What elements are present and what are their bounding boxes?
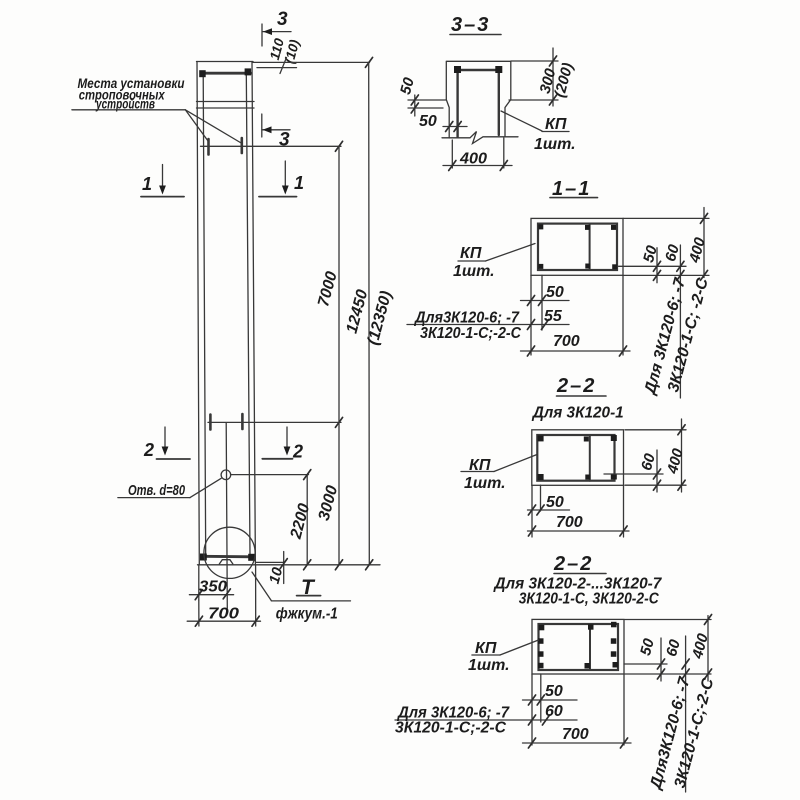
svg-text:12450: 12450 — [344, 288, 372, 335]
svg-text:1–1: 1–1 — [552, 178, 591, 200]
svg-text:50: 50 — [397, 75, 418, 96]
svg-text:700: 700 — [208, 606, 239, 623]
svg-text:2200: 2200 — [287, 502, 313, 542]
svg-text:3000: 3000 — [316, 484, 342, 523]
svg-text:50: 50 — [546, 494, 564, 511]
svg-text:Для 3К120-1: Для 3К120-1 — [531, 405, 624, 422]
svg-text:3К120-1-С;-2-С: 3К120-1-С;-2-С — [420, 325, 521, 342]
svg-text:3К120-1-С, 3К120-2-С: 3К120-1-С, 3К120-2-С — [519, 591, 659, 608]
svg-text:3К120-1-С;-2-С: 3К120-1-С;-2-С — [395, 720, 506, 737]
svg-text:400: 400 — [459, 151, 487, 168]
svg-text:КП: КП — [545, 116, 567, 133]
svg-text:фжкум.-1: фжкум.-1 — [276, 606, 338, 623]
svg-text:КП: КП — [460, 245, 482, 262]
svg-text:(200): (200) — [551, 61, 576, 99]
svg-text:Отв. d=80: Отв. d=80 — [128, 483, 185, 499]
svg-text:60: 60 — [663, 637, 684, 658]
svg-text:50: 50 — [545, 683, 563, 700]
svg-text:1: 1 — [142, 174, 152, 194]
svg-text:3: 3 — [277, 9, 288, 30]
svg-text:400: 400 — [686, 235, 709, 265]
svg-text:2–2: 2–2 — [553, 553, 593, 575]
svg-text:2–2: 2–2 — [556, 375, 596, 397]
svg-text:2: 2 — [292, 442, 303, 462]
svg-text:Для3К120-6; -7: Для3К120-6; -7 — [413, 310, 520, 327]
svg-text:60: 60 — [545, 703, 563, 720]
svg-text:50: 50 — [546, 284, 564, 301]
svg-text:2: 2 — [143, 440, 154, 460]
svg-text:350: 350 — [199, 579, 227, 596]
svg-text:3–3: 3–3 — [451, 14, 490, 36]
svg-text:50: 50 — [419, 113, 437, 130]
svg-text:1: 1 — [294, 173, 304, 193]
svg-text:400: 400 — [664, 446, 687, 476]
svg-text:700: 700 — [562, 726, 589, 743]
svg-text:50: 50 — [637, 636, 658, 657]
svg-text:700: 700 — [553, 333, 580, 350]
svg-text:1шт.: 1шт. — [468, 657, 510, 674]
svg-text:50: 50 — [640, 243, 661, 264]
svg-text:55: 55 — [544, 308, 563, 325]
svg-text:700: 700 — [556, 514, 583, 531]
svg-text:7000: 7000 — [315, 270, 341, 309]
svg-text:1шт.: 1шт. — [453, 263, 495, 280]
svg-text:1шт.: 1шт. — [464, 475, 506, 492]
svg-text:1шт.: 1шт. — [534, 136, 576, 153]
svg-text:3: 3 — [279, 130, 290, 151]
svg-text:60: 60 — [638, 451, 659, 472]
